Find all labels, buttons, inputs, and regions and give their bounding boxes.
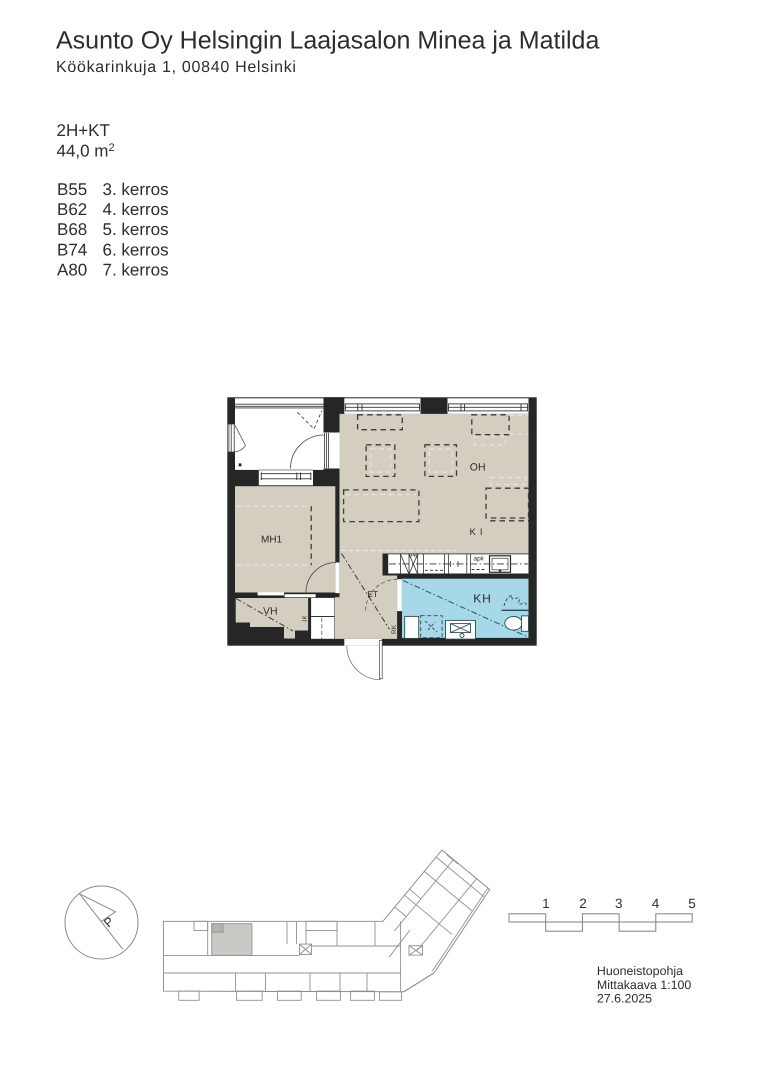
svg-text:3: 3 — [615, 896, 623, 911]
svg-text:OH: OH — [470, 462, 486, 474]
svg-text:ET: ET — [367, 589, 378, 599]
svg-text:44,0 m2: 44,0 m2 — [57, 141, 115, 160]
svg-text:Huoneistopohja: Huoneistopohja — [597, 964, 683, 978]
svg-text:apk: apk — [474, 555, 485, 562]
svg-text:B74: B74 — [57, 240, 87, 259]
svg-text:B55: B55 — [57, 180, 87, 199]
svg-text:Köökarinkuja 1, 00840 Helsinki: Köökarinkuja 1, 00840 Helsinki — [56, 59, 297, 76]
svg-text:5: 5 — [688, 896, 696, 911]
svg-text:1: 1 — [542, 896, 550, 911]
svg-text:IPK: IPK — [409, 554, 418, 560]
svg-text:A80: A80 — [57, 260, 87, 279]
svg-text:Mittakaava 1:100: Mittakaava 1:100 — [597, 978, 691, 992]
svg-text:2H+KT: 2H+KT — [57, 121, 110, 140]
svg-text:B68: B68 — [57, 220, 87, 239]
svg-text:VH: VH — [263, 605, 278, 617]
svg-text:K I: K I — [470, 527, 484, 538]
svg-text:KH: KH — [473, 591, 491, 605]
svg-text:4. kerros: 4. kerros — [103, 200, 169, 219]
svg-text:6. kerros: 6. kerros — [103, 240, 169, 259]
svg-text:4: 4 — [652, 896, 660, 911]
svg-text:B62: B62 — [57, 200, 87, 219]
svg-text:RK: RK — [391, 624, 398, 634]
svg-text:2: 2 — [579, 896, 587, 911]
svg-text:Asunto Oy Helsingin Laajasalon: Asunto Oy Helsingin Laajasalon Minea ja … — [56, 26, 599, 54]
svg-text:27.6.2025: 27.6.2025 — [597, 992, 652, 1006]
svg-text:5. kerros: 5. kerros — [103, 220, 169, 239]
svg-text:JK: JK — [302, 615, 309, 622]
svg-text:MH1: MH1 — [261, 535, 283, 546]
svg-text:7. kerros: 7. kerros — [103, 260, 169, 279]
svg-text:3. kerros: 3. kerros — [103, 180, 169, 199]
